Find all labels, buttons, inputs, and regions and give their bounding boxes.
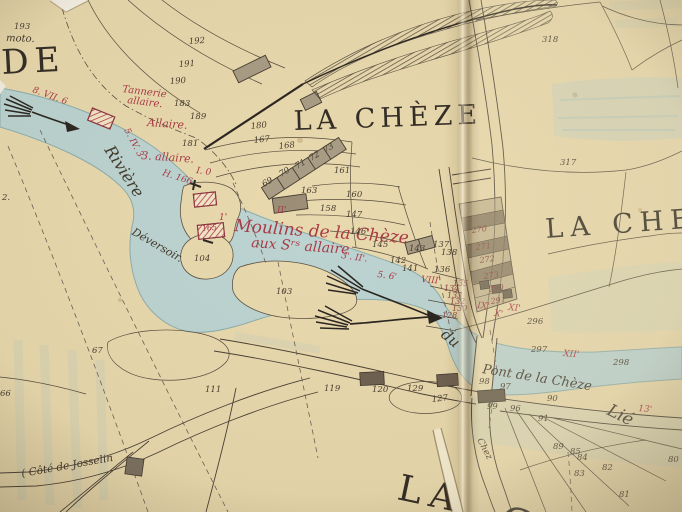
- photo-vignette: [0, 0, 682, 512]
- map-canvas: DE LA CHÈZE LA CHE LA C Rivière Déversoi…: [0, 0, 682, 512]
- cadastral-map-photo: DE LA CHÈZE LA CHE LA C Rivière Déversoi…: [0, 0, 682, 512]
